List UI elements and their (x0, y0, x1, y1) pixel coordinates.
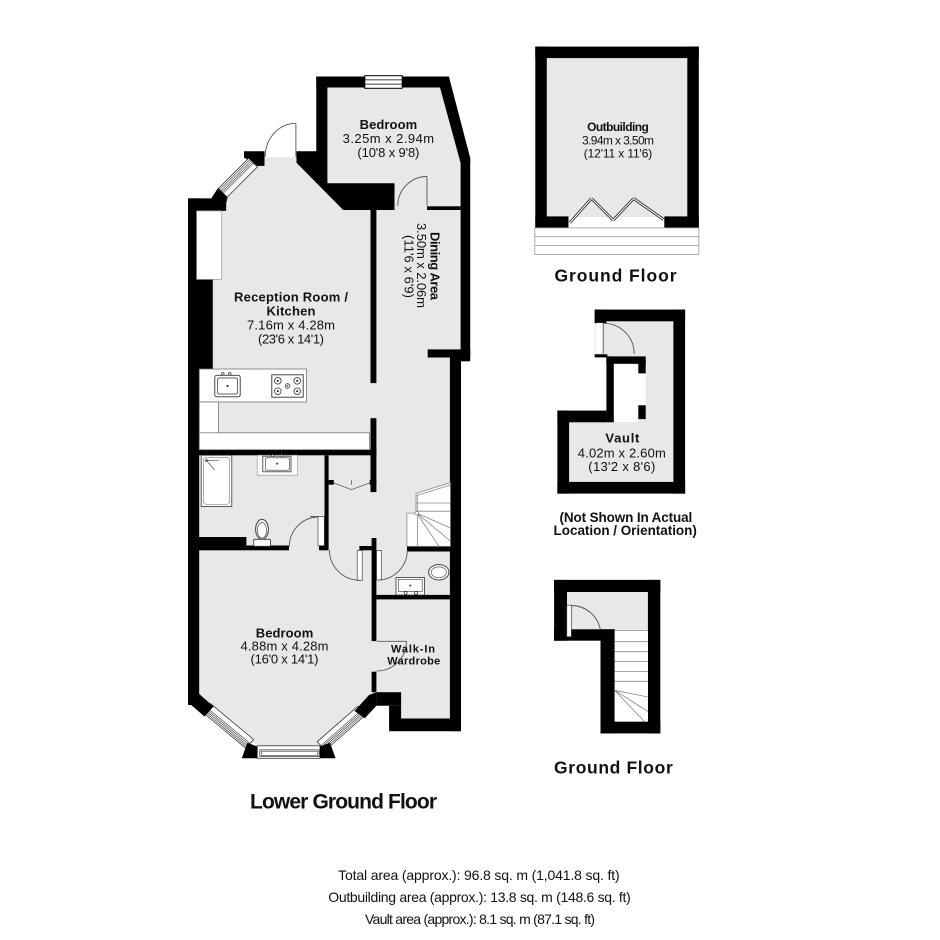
svg-text:7.16m x 4.28m: 7.16m x 4.28m (247, 318, 335, 333)
svg-text:3.25m x 2.94m: 3.25m x 2.94m (343, 131, 435, 146)
svg-text:Outbuilding: Outbuilding (587, 120, 649, 134)
svg-text:Kitchen: Kitchen (267, 304, 316, 319)
svg-text:Bedroom: Bedroom (360, 117, 418, 132)
svg-text:Lower Ground Floor: Lower Ground Floor (250, 791, 437, 814)
svg-text:(11'6 x 6'9): (11'6 x 6'9) (402, 235, 417, 298)
svg-text:Location / Orientation): Location / Orientation) (554, 523, 697, 538)
svg-text:(23'6 x 14'1): (23'6 x 14'1) (258, 331, 324, 346)
svg-text:Vault: Vault (605, 431, 640, 446)
svg-text:Wardrobe: Wardrobe (387, 656, 440, 668)
svg-text:(16'0 x 14'1): (16'0 x 14'1) (251, 651, 319, 666)
svg-text:Reception Room /: Reception Room / (234, 290, 348, 305)
svg-text:3.94m x 3.50m: 3.94m x 3.50m (582, 134, 654, 148)
svg-text:(12'11 x 11'6): (12'11 x 11'6) (584, 147, 653, 161)
svg-text:Total area (approx.): 96.8 sq.: Total area (approx.): 96.8 sq. m (1,041.… (338, 867, 620, 883)
svg-text:Ground Floor: Ground Floor (555, 266, 677, 286)
svg-text:(10'8 x 9'8): (10'8 x 9'8) (357, 145, 419, 160)
svg-text:Vault area (approx.): 8.1 sq.: Vault area (approx.): 8.1 sq. m (87.1 sq… (365, 911, 595, 927)
svg-text:(13'2 x 8'6): (13'2 x 8'6) (588, 459, 655, 474)
svg-text:Outbuilding area (approx.): 13: Outbuilding area (approx.): 13.8 sq. m (… (328, 889, 631, 905)
svg-text:Walk-In: Walk-In (391, 644, 435, 656)
svg-text:Ground Floor: Ground Floor (554, 758, 673, 778)
